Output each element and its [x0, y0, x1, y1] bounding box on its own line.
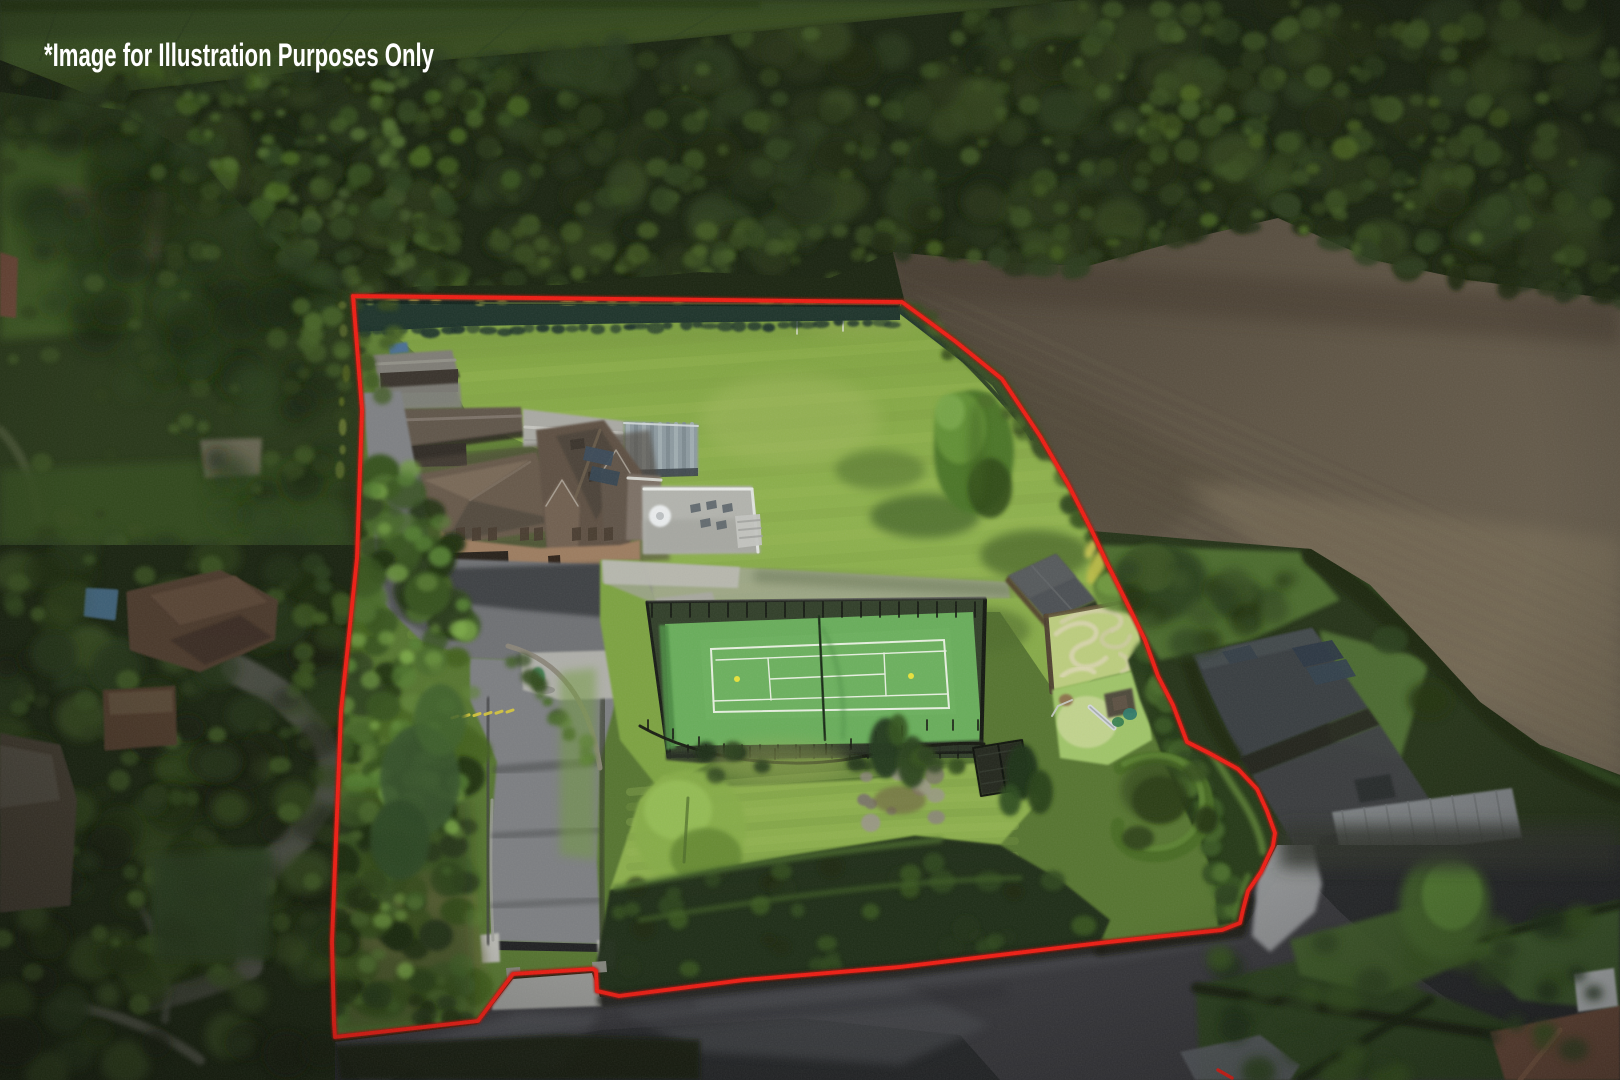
svg-text:*Image for Illustration Purpos: *Image for Illustration Purposes Only — [44, 37, 434, 73]
